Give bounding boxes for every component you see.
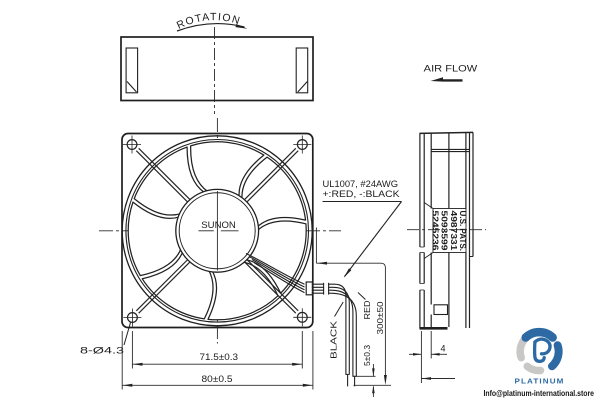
svg-text:UL1007, #24AWG: UL1007, #24AWG [323, 179, 399, 189]
svg-text:5±0.3: 5±0.3 [363, 344, 372, 366]
svg-text:PLATINUM: PLATINUM [515, 377, 565, 386]
svg-text:AIR FLOW: AIR FLOW [424, 63, 478, 73]
svg-text:RED: RED [362, 301, 372, 320]
svg-text:5245236: 5245236 [431, 211, 440, 252]
svg-text:4: 4 [441, 344, 446, 354]
svg-text:80±0.5: 80±0.5 [202, 374, 233, 384]
svg-text:4987331: 4987331 [449, 211, 458, 252]
svg-text:8-Ø4.3: 8-Ø4.3 [80, 346, 124, 357]
svg-text:SUNON: SUNON [201, 220, 236, 230]
svg-text:+:RED, -:BLACK: +:RED, -:BLACK [323, 189, 400, 199]
svg-text:300±50: 300±50 [375, 301, 385, 334]
svg-text:U.S. PATS.: U.S. PATS. [458, 211, 467, 252]
svg-text:71.5±0.3: 71.5±0.3 [200, 352, 239, 362]
svg-text:5093599: 5093599 [440, 211, 449, 252]
svg-text:Info@platinum-international.st: Info@platinum-international.store [484, 388, 595, 398]
svg-text:BLACK: BLACK [329, 321, 339, 359]
